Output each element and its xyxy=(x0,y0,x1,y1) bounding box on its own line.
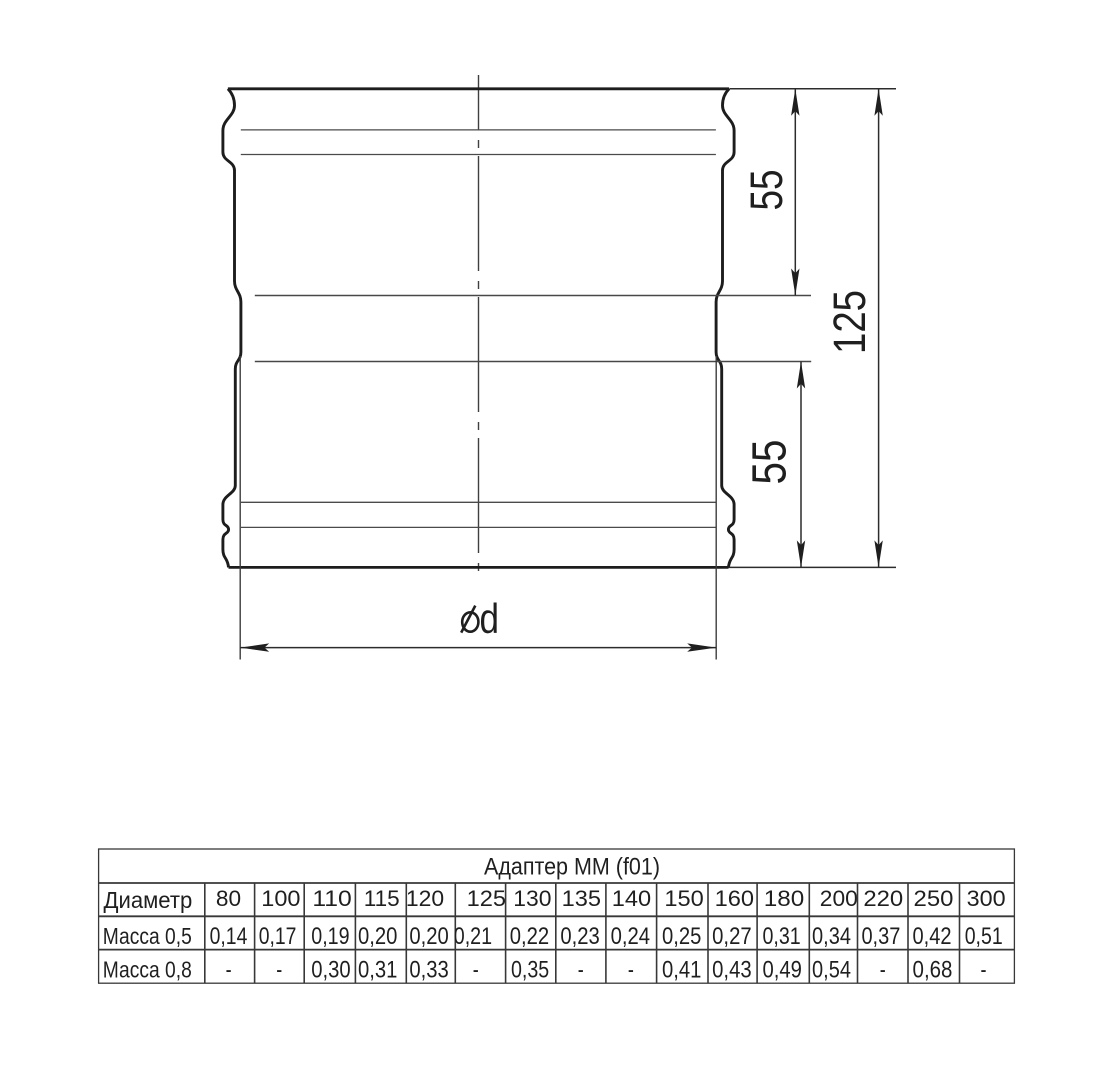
svg-text:100: 100 xyxy=(261,886,300,911)
svg-text:300: 300 xyxy=(967,886,1006,911)
svg-text:0,24: 0,24 xyxy=(611,923,650,950)
svg-text:130: 130 xyxy=(513,886,551,911)
svg-text:160: 160 xyxy=(715,886,754,911)
svg-text:0,51: 0,51 xyxy=(965,923,1003,950)
svg-text:-: - xyxy=(276,957,282,984)
svg-text:0,25: 0,25 xyxy=(662,923,701,950)
svg-text:Диаметр: Диаметр xyxy=(104,887,193,913)
svg-text:0,27: 0,27 xyxy=(712,923,752,950)
svg-text:0,17: 0,17 xyxy=(259,923,297,950)
svg-text:-: - xyxy=(981,957,987,984)
svg-text:Масса 0,8: Масса 0,8 xyxy=(103,957,192,983)
svg-text:0,23: 0,23 xyxy=(560,923,599,950)
svg-text:-: - xyxy=(628,957,634,984)
svg-text:200: 200 xyxy=(820,886,858,911)
svg-text:-: - xyxy=(880,957,886,984)
svg-text:0,34: 0,34 xyxy=(812,923,851,950)
svg-text:-: - xyxy=(226,957,232,984)
svg-text:0,31: 0,31 xyxy=(358,957,397,984)
svg-text:Адаптер ММ (f01): Адаптер ММ (f01) xyxy=(484,853,660,880)
svg-text:0,41: 0,41 xyxy=(662,957,701,984)
svg-text:150: 150 xyxy=(664,886,703,911)
svg-text:0,33: 0,33 xyxy=(409,957,448,984)
svg-text:0,31: 0,31 xyxy=(763,923,801,950)
svg-text:125: 125 xyxy=(467,886,506,911)
svg-text:0,20: 0,20 xyxy=(358,923,397,950)
svg-text:140: 140 xyxy=(612,886,651,911)
svg-text:0,30: 0,30 xyxy=(311,957,350,984)
svg-text:220: 220 xyxy=(863,886,903,911)
svg-text:55: 55 xyxy=(743,440,796,485)
svg-text:0,35: 0,35 xyxy=(511,957,549,984)
svg-text:0,42: 0,42 xyxy=(913,923,952,950)
svg-text:0,21: 0,21 xyxy=(454,923,492,950)
svg-text:d: d xyxy=(480,595,500,642)
svg-text:125: 125 xyxy=(824,290,875,354)
svg-text:55: 55 xyxy=(741,170,792,211)
svg-text:0,49: 0,49 xyxy=(763,957,802,984)
svg-text:0,14: 0,14 xyxy=(210,923,248,950)
svg-text:0,54: 0,54 xyxy=(812,957,851,984)
svg-text:80: 80 xyxy=(216,886,241,911)
svg-text:0,43: 0,43 xyxy=(712,957,752,984)
svg-text:110: 110 xyxy=(312,886,351,911)
svg-text:0,22: 0,22 xyxy=(510,923,549,950)
svg-text:0,19: 0,19 xyxy=(311,923,349,950)
svg-text:0,37: 0,37 xyxy=(861,923,900,950)
svg-text:0,68: 0,68 xyxy=(913,957,953,984)
svg-text:120: 120 xyxy=(406,886,444,911)
svg-text:0,20: 0,20 xyxy=(409,923,448,950)
svg-text:135: 135 xyxy=(562,886,601,911)
svg-text:115: 115 xyxy=(364,886,400,911)
svg-text:180: 180 xyxy=(764,886,805,911)
svg-text:250: 250 xyxy=(914,886,954,911)
svg-text:-: - xyxy=(578,957,584,984)
svg-text:Масса 0,5: Масса 0,5 xyxy=(103,923,192,949)
svg-text:-: - xyxy=(473,957,479,984)
